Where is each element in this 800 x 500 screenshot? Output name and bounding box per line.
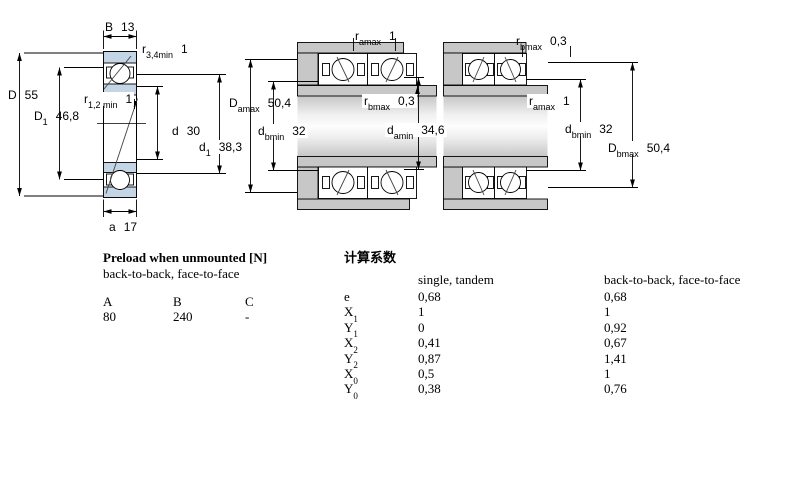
factors-row-X2: X2 0,41 0,67 [344, 335, 774, 350]
dim-label-ramax-2: ramax1 [527, 94, 572, 108]
preload-value-B: 240 [173, 309, 245, 324]
housing-bottom [444, 199, 548, 210]
dim-D [20, 53, 104, 196]
factors-table-header-row: single, tandem back-to-back, face-to-fac… [344, 272, 774, 287]
ball-top [110, 64, 130, 84]
housing-shoulder-bottom [444, 167, 463, 199]
factors-row-Y1: Y1 0 0,92 [344, 320, 774, 335]
dim-d [137, 87, 163, 160]
factors-table-body: e 0,68 0,68 X1 1 1 Y1 0 0,92 X2 0,41 0,6… [344, 289, 774, 397]
dim-label-dbmin-2: dbmin32 [563, 122, 615, 136]
bearing-pair-top [319, 54, 417, 86]
housing-shoulder-top [444, 53, 463, 85]
dim-label-D: D55 [8, 88, 38, 102]
preload-table-subtitle: back-to-back, face-to-face [103, 266, 239, 281]
dim-a [104, 200, 137, 218]
factors-row-X0: X0 0,5 1 [344, 366, 774, 381]
shaft-seat-bottom [298, 157, 437, 168]
housing-shoulder-bottom [298, 167, 319, 199]
ball-bottom [111, 171, 130, 190]
preload-col-B: B [173, 294, 245, 309]
dim-label-dbmin: dbmin32 [256, 124, 308, 138]
housing-bottom [298, 199, 410, 210]
dim-label-r34: r3,4min1 [142, 42, 188, 56]
dim-label-rbmax-2: rbmax0,3 [516, 34, 567, 48]
housing-top [298, 43, 404, 54]
preload-value-C: - [245, 309, 305, 324]
preload-col-A: A [103, 294, 173, 309]
dim-label-rbmax: rbmax0,3 [362, 94, 417, 108]
dim-label-B: B13 [105, 20, 134, 34]
dim-D1 [60, 68, 104, 180]
factors-table-title: 计算系数 [344, 250, 396, 265]
bearing-pair-top [463, 54, 527, 86]
preload-col-C: C [245, 294, 305, 309]
bearing-datasheet-page: B13 r3,4min1 D55 D146,8 r1,2 min1 d30 d1… [0, 0, 800, 500]
housing-top [444, 43, 527, 54]
dim-label-ramax: ramax1 [355, 29, 396, 43]
preload-table-title: Preload when unmounted [N] [103, 250, 267, 265]
outer-ring-top [104, 52, 137, 64]
shaft-seat-bottom [444, 157, 548, 168]
factors-row-X1: X1 1 1 [344, 304, 774, 319]
dim-label-Dbmax-2: Dbmax50,4 [606, 141, 672, 155]
factors-col-single-tandem: single, tandem [418, 272, 604, 287]
dim-label-Damax: Damax50,4 [229, 96, 291, 110]
dim-label-d: d30 [170, 124, 202, 138]
preload-table-header-row: A B C [103, 294, 305, 309]
dim-label-damin: damin34,6 [385, 123, 447, 137]
factors-row-e: e 0,68 0,68 [344, 289, 774, 304]
factors-col-btb-ftf: back-to-back, face-to-face [604, 272, 774, 287]
factors-row-Y2: Y2 0,87 1,41 [344, 351, 774, 366]
housing-shoulder-top [298, 53, 319, 85]
factors-row-Y0: Y0 0,38 0,76 [344, 381, 774, 396]
dim-label-r12: r1,2 min1 [82, 92, 134, 106]
dim-label-a: a17 [109, 220, 137, 234]
bearing-pair-bottom [463, 167, 527, 199]
preload-value-A: 80 [103, 309, 173, 324]
preload-table-value-row: 80 240 - [103, 309, 305, 324]
bearing-pair-bottom [319, 167, 417, 199]
dim-label-d1: d138,3 [197, 140, 244, 154]
dim-label-D1: D146,8 [34, 109, 79, 123]
